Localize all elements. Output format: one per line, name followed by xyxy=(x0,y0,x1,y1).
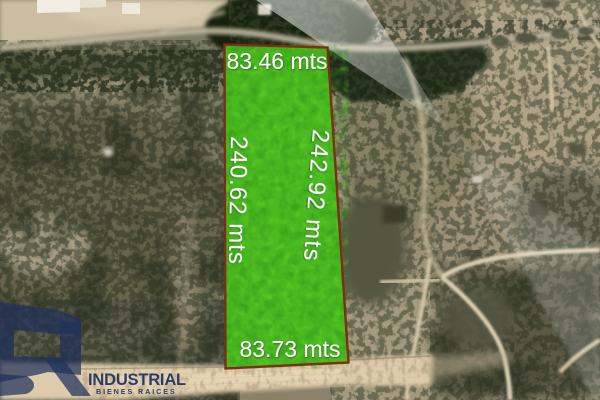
svg-text:83.73 mts: 83.73 mts xyxy=(240,336,341,362)
svg-text:BIENES RAICES: BIENES RAICES xyxy=(96,387,177,396)
svg-text:83.46 mts: 83.46 mts xyxy=(227,48,328,74)
svg-text:240.62 mts: 240.62 mts xyxy=(223,136,252,265)
